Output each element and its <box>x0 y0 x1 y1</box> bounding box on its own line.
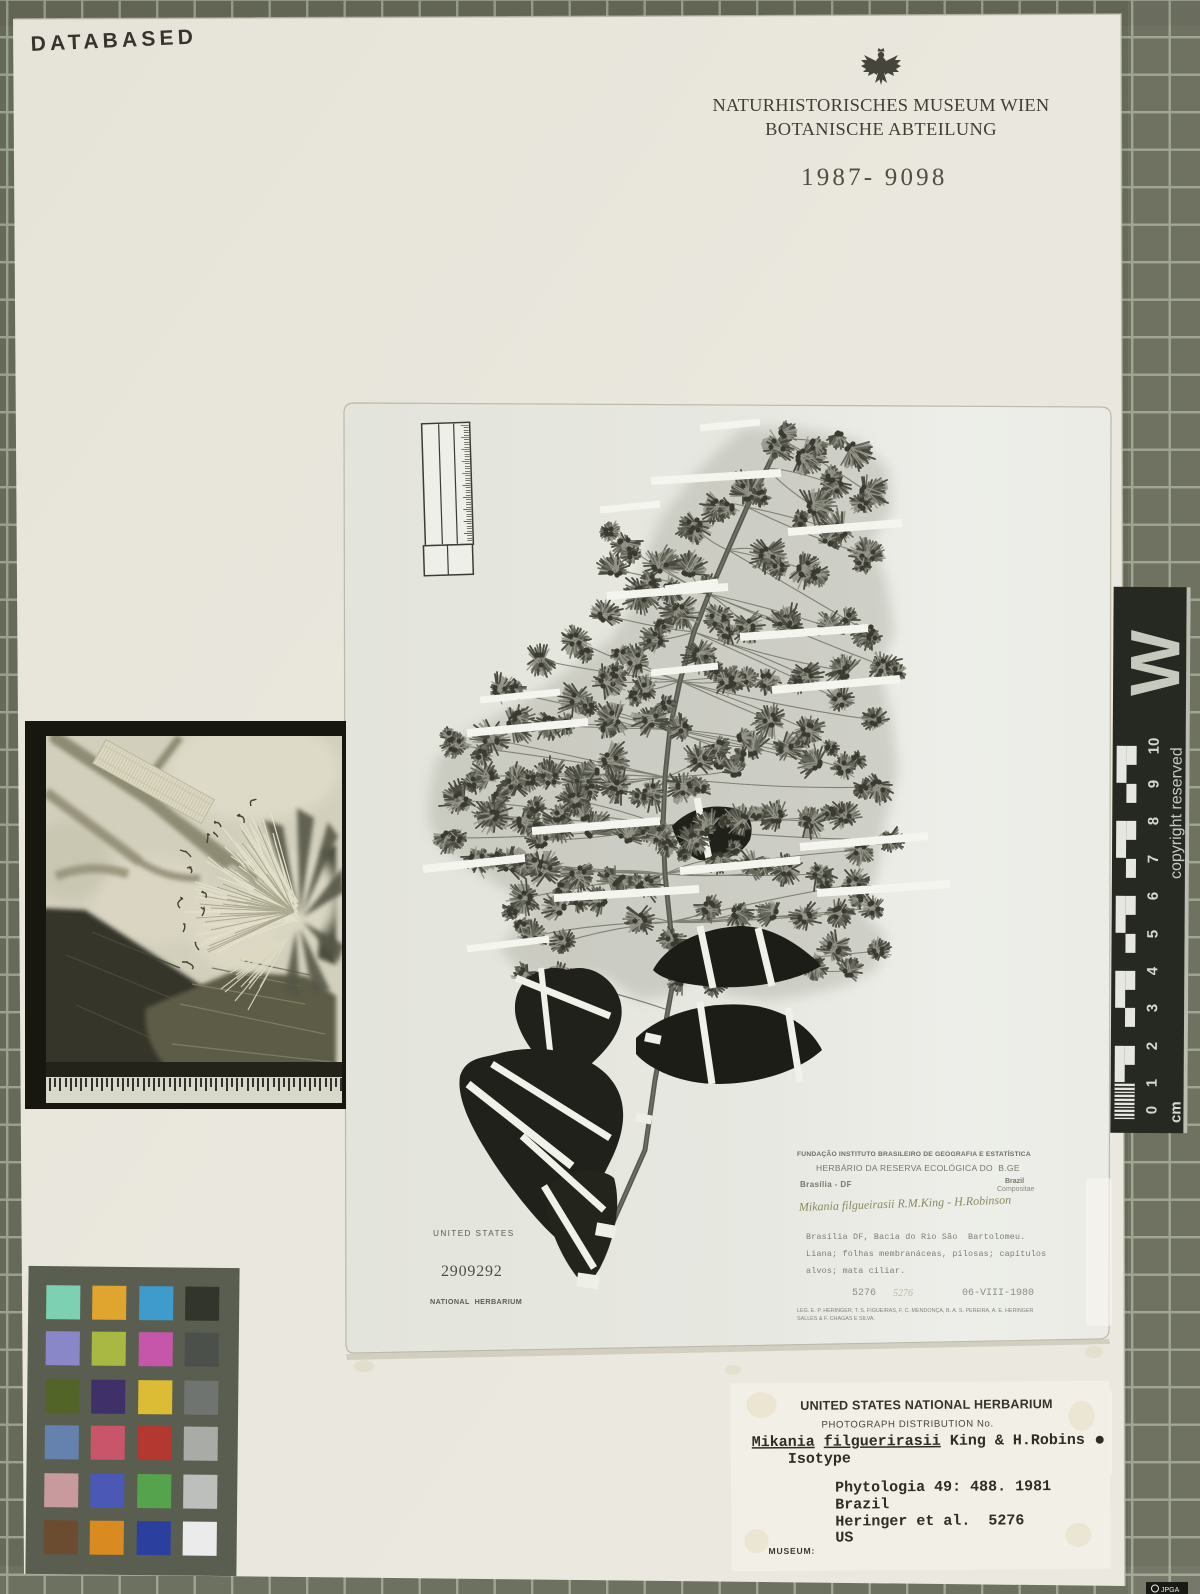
svg-text:Heringer et al. 5276: Heringer et al. 5276 <box>835 1512 1024 1530</box>
svg-text:Brasília - DF: Brasília - DF <box>800 1180 852 1189</box>
svg-text:UNITED STATES NATIONAL HERBARI: UNITED STATES NATIONAL HERBARIUM <box>800 1397 1053 1413</box>
svg-text:1987- 9098: 1987- 9098 <box>801 164 948 191</box>
svg-text:SALLES & F. CHAGAS E SILVA.: SALLES & F. CHAGAS E SILVA. <box>797 1316 875 1322</box>
svg-text:7: 7 <box>1145 855 1162 863</box>
svg-text:06-VIII-1980: 06-VIII-1980 <box>962 1288 1034 1299</box>
svg-text:Liana; folhas membranáceas, pi: Liana; folhas membranáceas, pilosas; cap… <box>806 1249 1046 1259</box>
svg-text:2: 2 <box>1144 1042 1161 1050</box>
svg-text:W: W <box>1116 630 1194 697</box>
svg-text:Mikania filguerirasii King & H: Mikania filguerirasii King & H.Robins <box>752 1432 1085 1451</box>
svg-text:Isotype: Isotype <box>788 1450 851 1467</box>
svg-text:8: 8 <box>1145 817 1162 825</box>
svg-text:UNITED STATES: UNITED STATES <box>433 1229 515 1238</box>
svg-text:2909292: 2909292 <box>441 1263 503 1280</box>
svg-text:Brasília DF, Bacia do Rio São: Brasília DF, Bacia do Rio São Bartolomeu… <box>806 1232 1025 1242</box>
svg-text:0: 0 <box>1143 1106 1160 1114</box>
svg-text:10: 10 <box>1146 738 1163 755</box>
svg-text:FUNDAÇÃO INSTITUTO BRASILEIRO: FUNDAÇÃO INSTITUTO BRASILEIRO DE GEOGRAF… <box>797 1149 1031 1158</box>
svg-text:Brazil: Brazil <box>835 1496 889 1513</box>
svg-text:6: 6 <box>1145 892 1162 900</box>
svg-text:Brazil: Brazil <box>1005 1178 1024 1185</box>
svg-text:5: 5 <box>1145 930 1162 938</box>
svg-text:JPGA: JPGA <box>1161 1587 1180 1594</box>
svg-text:copyright reserved: copyright reserved <box>1168 747 1186 879</box>
svg-text:5276: 5276 <box>893 1288 913 1299</box>
svg-text:NATIONAL HERBARIUM: NATIONAL HERBARIUM <box>430 1297 522 1306</box>
svg-text:4: 4 <box>1144 966 1161 975</box>
svg-text:BOTANISCHE ABTEILUNG: BOTANISCHE ABTEILUNG <box>765 119 997 139</box>
svg-text:PHOTOGRAPH DISTRIBUTION No.: PHOTOGRAPH DISTRIBUTION No. <box>821 1418 993 1430</box>
svg-text:LEG. E. P. HERINGER, T. S. FIG: LEG. E. P. HERINGER, T. S. FIGUEIRAS, F.… <box>797 1308 1034 1314</box>
svg-text:alvos; mata ciliar.: alvos; mata ciliar. <box>806 1266 905 1276</box>
svg-text:3: 3 <box>1144 1004 1161 1012</box>
svg-text:MUSEUM:: MUSEUM: <box>768 1546 815 1556</box>
svg-text:Phytologia 49: 488. 1981: Phytologia 49: 488. 1981 <box>835 1478 1051 1497</box>
svg-text:9: 9 <box>1145 780 1162 788</box>
svg-text:NATURHISTORISCHES MUSEUM WIEN: NATURHISTORISCHES MUSEUM WIEN <box>712 95 1049 115</box>
svg-text:US: US <box>835 1529 853 1546</box>
svg-text:HERBÁRIO DA RESERVA ECOLÓGICA: HERBÁRIO DA RESERVA ECOLÓGICA DO B.GE <box>816 1163 1020 1173</box>
svg-text:5276: 5276 <box>852 1288 876 1299</box>
svg-text:cm: cm <box>1167 1101 1184 1123</box>
svg-text:1: 1 <box>1144 1079 1161 1087</box>
